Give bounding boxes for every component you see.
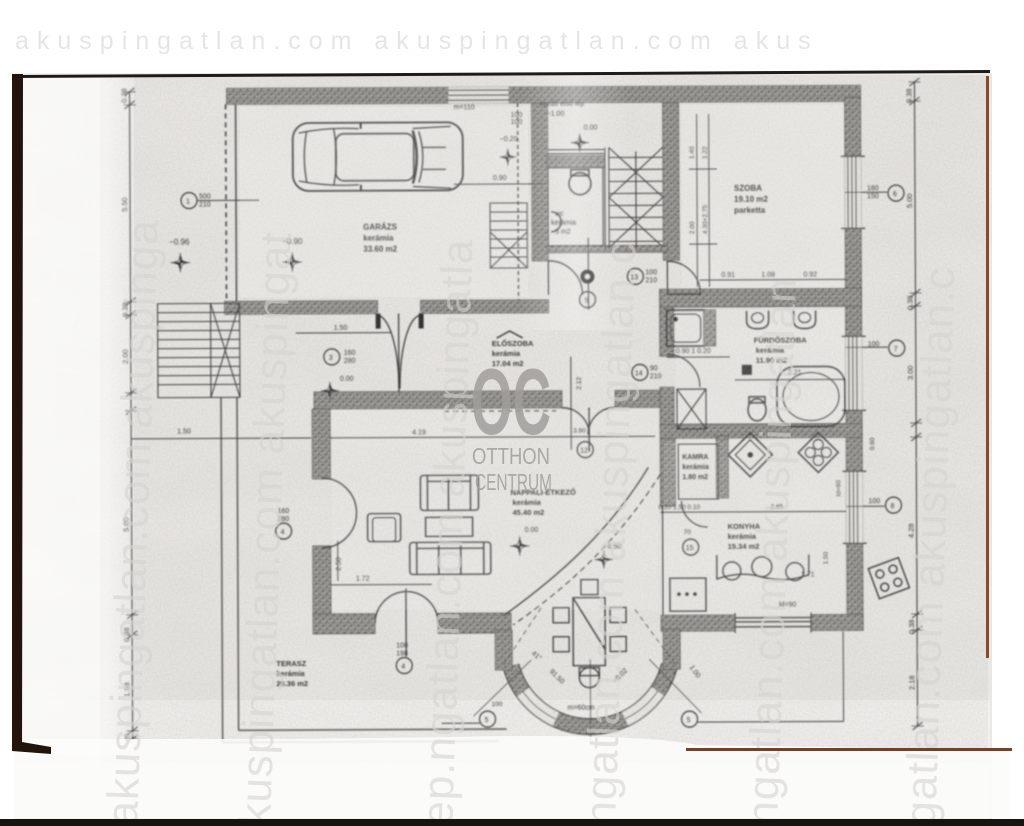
svg-text:akuspingatlan.com akuspingatla: akuspingatlan.com akuspingatlan.com akus bbox=[15, 27, 819, 55]
svg-text:OTTHON: OTTHON bbox=[472, 443, 550, 469]
svg-text:OC: OC bbox=[471, 349, 551, 454]
svg-text:CENTRUM: CENTRUM bbox=[475, 469, 552, 495]
